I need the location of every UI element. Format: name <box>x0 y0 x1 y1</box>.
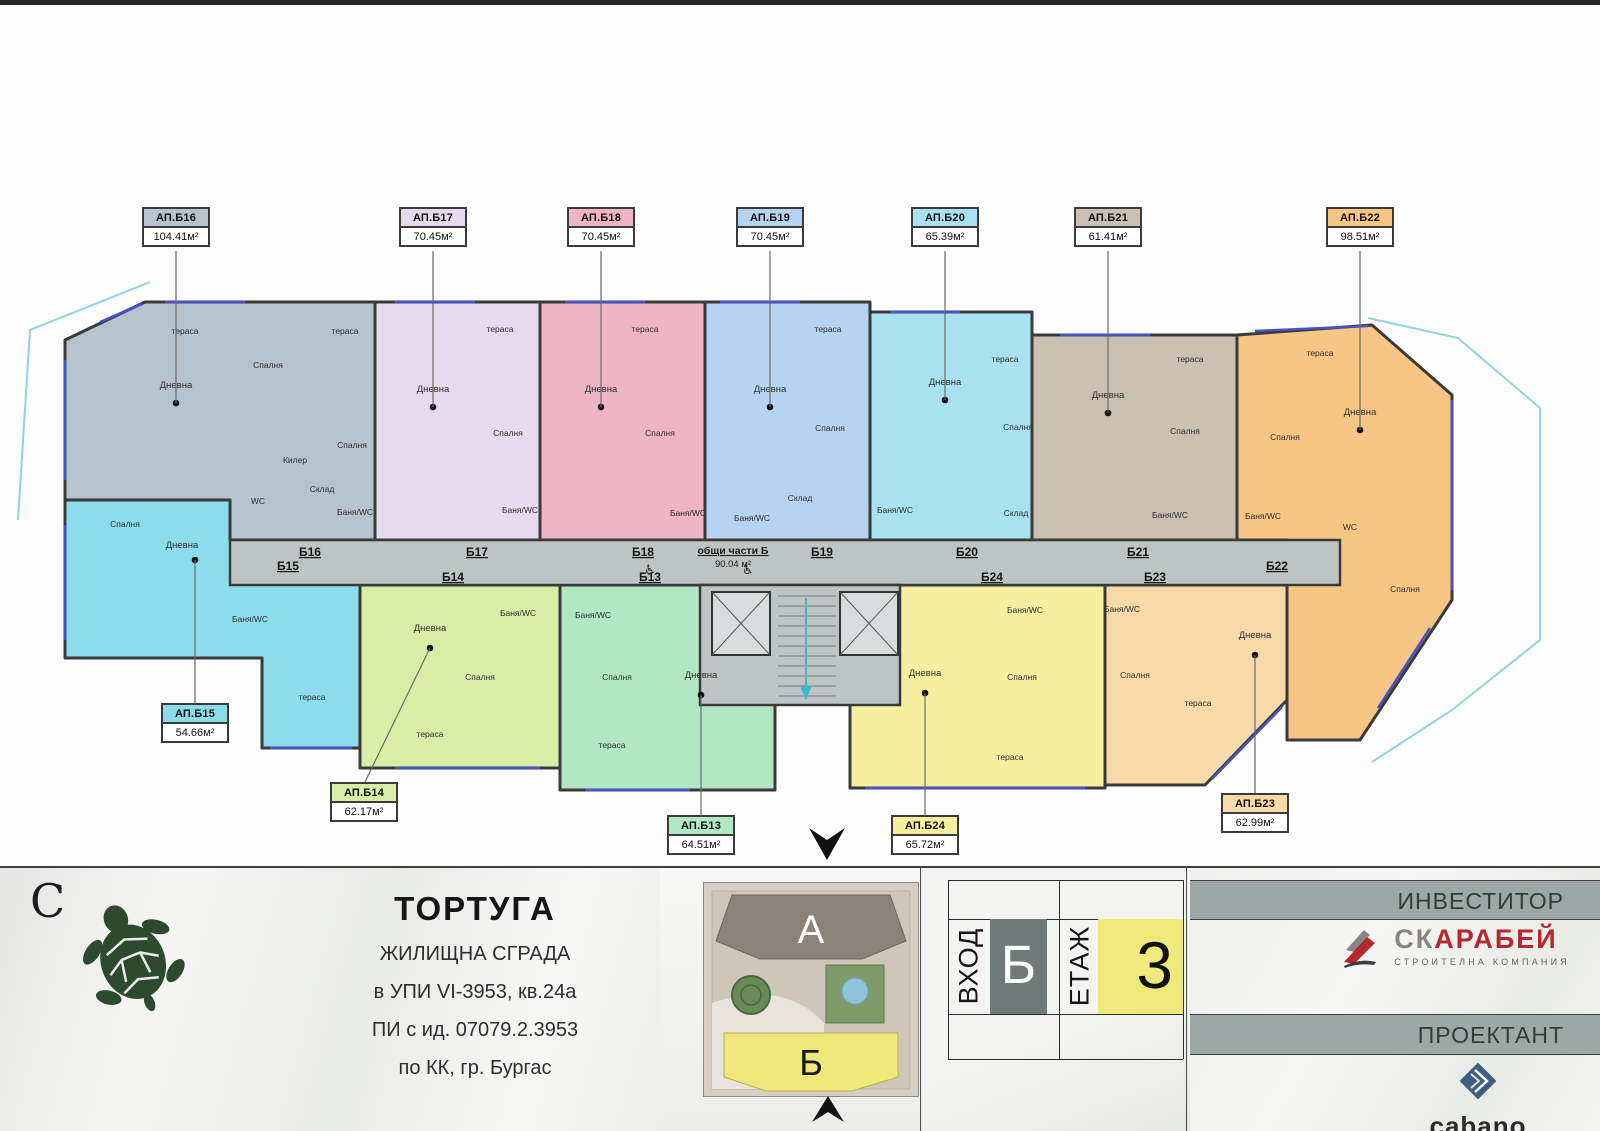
room-label: тераса <box>487 324 514 334</box>
floorplan-canvas: терасаСпалнятерасаДневнаСпалняКилерСклад… <box>0 0 1600 866</box>
corridor-unit-number: Б21 <box>1127 545 1149 559</box>
room-label: Баня/WC <box>1007 605 1043 615</box>
room-label: Спалня <box>1390 584 1420 594</box>
room-label: Дневна <box>685 670 718 681</box>
room-label: тераса <box>632 324 659 334</box>
room-label: Баня/WC <box>575 610 611 620</box>
room-label: тераса <box>997 752 1024 762</box>
room-label: Дневна <box>414 623 447 634</box>
investor-subtitle: СТРОИТЕЛНА КОМПАНИЯ <box>1394 957 1570 967</box>
project-line: по КК, гр. Бургас <box>300 1057 650 1080</box>
room-label: тераса <box>599 740 626 750</box>
room-label: тераса <box>992 354 1019 364</box>
apartment-b18 <box>540 302 705 540</box>
wheelchair-icon: ♿ <box>644 563 656 578</box>
room-label: тераса <box>1177 354 1204 364</box>
site-pool <box>842 978 868 1004</box>
room-label: Склад <box>310 484 335 494</box>
turtle-logo-icon <box>72 894 192 1024</box>
room-label: Дневна <box>1239 630 1272 641</box>
corridor-unit-number: Б22 <box>1266 559 1288 573</box>
entrance-label: ВХОД <box>949 919 989 1014</box>
room-label: тераса <box>1185 698 1212 708</box>
room-label: Баня/WC <box>877 505 913 515</box>
room-label: Спалня <box>337 440 367 450</box>
room-label: Дневна <box>909 668 942 679</box>
site-building-b-label: Б <box>799 1042 823 1083</box>
apartment-b21 <box>1032 335 1237 540</box>
room-label: Спалня <box>645 428 675 438</box>
room-label: Спалня <box>815 423 845 433</box>
room-label: Баня/WC <box>500 608 536 618</box>
investor-header: ИНВЕСТИТОР <box>1190 880 1600 920</box>
designer-header: ПРОЕКТАНТ <box>1190 1014 1600 1055</box>
project-line: ЖИЛИЩНА СГРАДА <box>300 943 650 966</box>
room-label: Спалня <box>1170 426 1200 436</box>
room-label: Спалня <box>1270 432 1300 442</box>
corridor-unit-number: Б17 <box>466 545 488 559</box>
room-label: WC <box>1343 522 1357 532</box>
companies-panel: ИНВЕСТИТОР СКАРАБЕЙ СТРОИТЕЛНА КОМПАНИЯ … <box>1190 868 1600 1131</box>
room-label: Склад <box>788 493 813 503</box>
room-label: Баня/WC <box>337 507 373 517</box>
title-block: С ТОРТУГА ЖИЛИЩНА СГРАДА <box>0 866 1600 1131</box>
siteplan-panel: А Б <box>660 868 920 1131</box>
corridor-unit-number: Б19 <box>811 545 833 559</box>
corridor-unit-number: Б14 <box>442 570 464 584</box>
room-label: Спалня <box>1003 422 1033 432</box>
entrance-value: Б <box>990 919 1047 1014</box>
corridor-unit-number: Б24 <box>981 570 1003 584</box>
room-label: Баня/WC <box>734 513 770 523</box>
room-label: тераса <box>815 324 842 334</box>
room-label: Спалня <box>253 360 283 370</box>
project-title: ТОРТУГА <box>300 890 650 928</box>
turtle-sculpture <box>732 976 770 1014</box>
room-label: Баня/WC <box>1152 510 1188 520</box>
north-letter: С <box>30 874 65 928</box>
room-label: Килер <box>283 455 307 465</box>
wheelchair-icon: ♿ <box>742 563 754 578</box>
apartment-b23 <box>1105 585 1287 785</box>
site-arrow-up-icon <box>810 1096 846 1124</box>
site-building-a-label: А <box>798 908 825 952</box>
floorplan-sheet: терасаСпалнятерасаДневнаСпалняКилерСклад… <box>0 0 1600 1131</box>
floor-value: 3 <box>1098 919 1183 1014</box>
room-label: тераса <box>299 692 326 702</box>
project-line: ПИ с ид. 07079.2.3953 <box>300 1019 650 1042</box>
common-area-label: общи части Б <box>698 545 769 557</box>
panel-divider <box>1186 868 1187 1131</box>
corridor-unit-number: Б23 <box>1144 570 1166 584</box>
room-label: Спалня <box>493 428 523 438</box>
site-arrow-down-icon <box>809 828 845 860</box>
scarab-logo-icon <box>1340 924 1384 968</box>
room-label: Спалня <box>602 672 632 682</box>
room-label: Спалня <box>110 519 140 529</box>
room-label: тераса <box>417 729 444 739</box>
investor-name: СКАРАБЕЙ <box>1394 926 1570 953</box>
room-label: Баня/WC <box>670 508 706 518</box>
room-label: Спалня <box>465 672 495 682</box>
room-label: Баня/WC <box>232 614 268 624</box>
project-line: в УПИ VI-3953, кв.24а <box>300 981 650 1004</box>
corridor-unit-number: Б18 <box>632 545 654 559</box>
floor-label: ЕТАЖ <box>1060 919 1100 1014</box>
room-label: Спалня <box>1007 672 1037 682</box>
designer-name: cabano <box>1408 1111 1548 1131</box>
room-label: Баня/WC <box>1104 604 1140 614</box>
room-label: Дневна <box>166 540 199 551</box>
room-label: Баня/WC <box>1245 511 1281 521</box>
corridor-unit-number: Б20 <box>956 545 978 559</box>
corridor-unit-number: Б15 <box>277 559 299 573</box>
site-plan: А Б <box>703 882 919 1097</box>
room-label: тераса <box>1307 348 1334 358</box>
designer-logo: cabano <box>1408 1058 1548 1131</box>
apartment-b19 <box>705 302 870 540</box>
room-label: тераса <box>332 326 359 336</box>
room-label: Спалня <box>1120 670 1150 680</box>
room-label: WC <box>251 496 265 506</box>
corridor-unit-number: Б16 <box>299 545 321 559</box>
room-label: Баня/WC <box>502 505 538 515</box>
room-label: Склад <box>1004 508 1029 518</box>
panel-divider <box>920 868 921 1131</box>
investor-logo: СКАРАБЕЙ СТРОИТЕЛНА КОМПАНИЯ <box>1340 924 1570 968</box>
entrance-floor-panel: ВХОД Б ЕТАЖ 3 <box>920 868 1190 1131</box>
project-info-panel: С ТОРТУГА ЖИЛИЩНА СГРАДА <box>0 868 660 1131</box>
project-description: ТОРТУГА ЖИЛИЩНА СГРАДА в УПИ VI-3953, кв… <box>300 868 650 1080</box>
cabano-logo-icon <box>1455 1058 1501 1104</box>
